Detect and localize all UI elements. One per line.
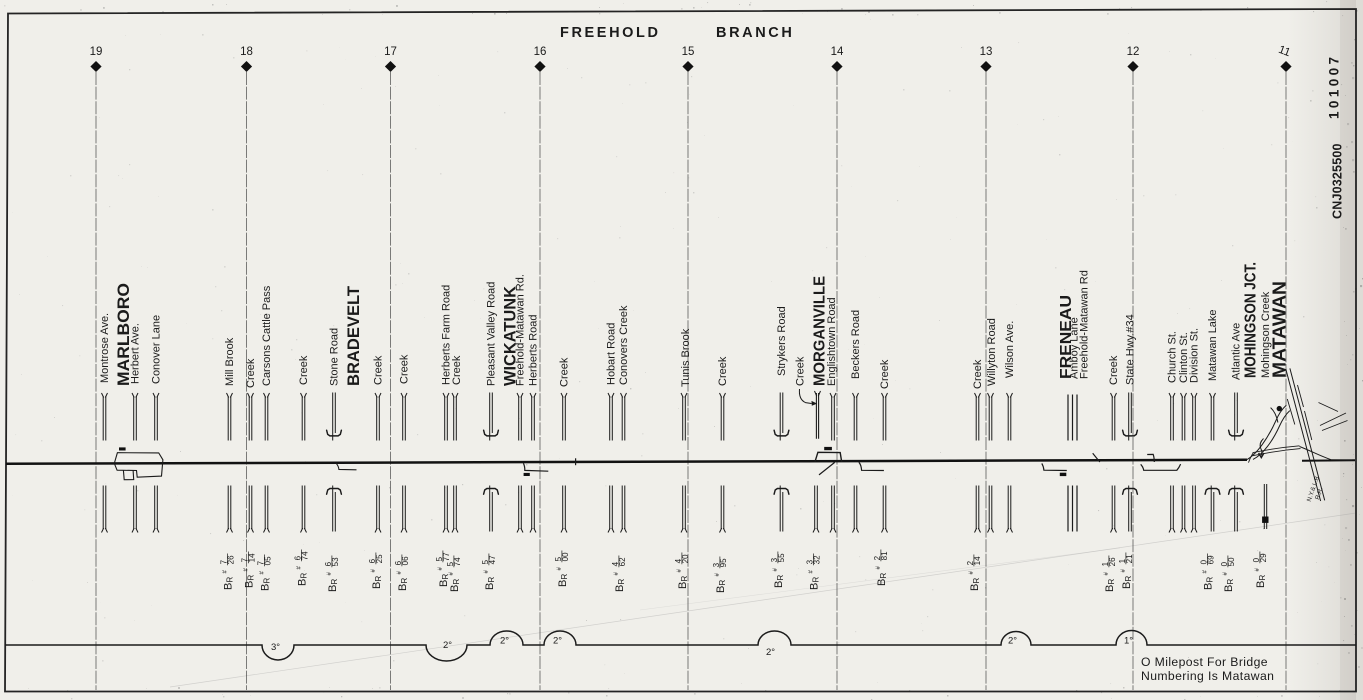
- svg-text:Hobart Road: Hobart Road: [606, 323, 618, 385]
- svg-text:81: 81: [880, 551, 889, 560]
- svg-text:Creek: Creek: [1108, 355, 1120, 385]
- svg-text:47: 47: [488, 555, 497, 564]
- svg-text:B: B: [677, 582, 689, 589]
- svg-text:2°: 2°: [766, 647, 775, 658]
- svg-text:Conover Lane: Conover Lane: [151, 315, 163, 384]
- svg-text:Willyton Road: Willyton Road: [986, 318, 998, 386]
- svg-text:Beckers Road: Beckers Road: [850, 310, 862, 379]
- svg-text:R: R: [560, 574, 569, 580]
- svg-text:B: B: [297, 579, 309, 586]
- svg-text:Mill Brook: Mill Brook: [224, 337, 236, 386]
- svg-text:B: B: [1255, 581, 1267, 588]
- svg-text:B: B: [244, 581, 256, 588]
- svg-text:Wilson Ave.: Wilson Ave.: [1004, 321, 1016, 378]
- svg-text:14: 14: [973, 556, 982, 565]
- svg-text:R: R: [330, 579, 339, 585]
- svg-text:Carsons Cattle Pass: Carsons Cattle Pass: [261, 285, 273, 386]
- svg-text:R: R: [879, 573, 888, 579]
- svg-text:B: B: [260, 584, 272, 591]
- svg-text:B: B: [614, 585, 626, 592]
- svg-text:69: 69: [1206, 555, 1215, 564]
- svg-text:R: R: [617, 579, 626, 585]
- svg-text:R: R: [776, 575, 785, 581]
- svg-text:05: 05: [263, 556, 272, 565]
- svg-text:B: B: [327, 585, 339, 592]
- svg-text:R: R: [487, 577, 496, 583]
- svg-text:2°: 2°: [1008, 636, 1017, 647]
- svg-text:Herberts Road: Herberts Road: [528, 314, 540, 386]
- svg-text:BRADEVELT: BRADEVELT: [344, 285, 363, 386]
- svg-text:MORGANVILLE: MORGANVILLE: [812, 276, 829, 386]
- svg-text:21: 21: [1125, 554, 1134, 563]
- svg-text:06: 06: [401, 556, 410, 565]
- svg-text:Creek: Creek: [245, 358, 257, 388]
- svg-text:B: B: [773, 581, 785, 588]
- svg-text:62: 62: [618, 557, 627, 566]
- svg-text:B: B: [1223, 585, 1235, 592]
- svg-text:MATAWAN: MATAWAN: [1270, 281, 1290, 378]
- svg-text:74: 74: [453, 557, 462, 566]
- svg-text:2°: 2°: [553, 636, 562, 647]
- svg-text:R: R: [1107, 579, 1116, 585]
- svg-text:14: 14: [247, 553, 256, 562]
- svg-text:R: R: [812, 577, 821, 583]
- svg-text:Creek: Creek: [972, 359, 984, 389]
- svg-text:101007: 101007: [1327, 54, 1342, 119]
- svg-text:B: B: [1121, 582, 1133, 589]
- svg-text:B: B: [397, 584, 409, 591]
- svg-text:Creek: Creek: [399, 354, 411, 384]
- svg-text:B: B: [557, 580, 569, 587]
- svg-text:CNJ0325500: CNJ0325500: [1331, 143, 1345, 219]
- svg-text:Conovers Creek: Conovers Creek: [618, 305, 630, 385]
- svg-text:BRANCH: BRANCH: [716, 25, 794, 41]
- svg-text:R: R: [1226, 579, 1235, 585]
- svg-text:R: R: [972, 578, 981, 584]
- svg-text:74: 74: [300, 551, 309, 560]
- svg-text:MOHINGSON JCT.: MOHINGSON JCT.: [1242, 262, 1259, 378]
- svg-text:B: B: [809, 583, 821, 590]
- svg-text:29: 29: [1259, 553, 1268, 562]
- svg-text:R: R: [680, 576, 689, 582]
- svg-text:77: 77: [442, 552, 451, 561]
- svg-text:B: B: [1104, 585, 1116, 592]
- svg-text:Creek: Creek: [795, 356, 807, 386]
- svg-text:50: 50: [1227, 557, 1236, 566]
- svg-text:B: B: [876, 579, 888, 586]
- svg-text:R: R: [374, 576, 383, 582]
- svg-text:Creek: Creek: [451, 355, 463, 385]
- svg-text:26: 26: [226, 555, 235, 564]
- svg-text:B: B: [223, 583, 235, 590]
- svg-text:Strykers Road: Strykers Road: [776, 306, 788, 376]
- svg-text:FREEHOLD: FREEHOLD: [560, 25, 661, 41]
- svg-text:2°: 2°: [500, 636, 509, 647]
- svg-text:Numbering Is Matawan: Numbering Is Matawan: [1141, 669, 1274, 683]
- svg-text:2°: 2°: [443, 640, 452, 651]
- svg-text:O Milepost For Bridge: O Milepost For Bridge: [1141, 655, 1268, 669]
- svg-text:FRENEAU: FRENEAU: [1058, 295, 1075, 379]
- svg-text:Creek: Creek: [717, 356, 729, 386]
- svg-text:State Hwy.#34: State Hwy.#34: [1125, 314, 1137, 385]
- svg-text:16: 16: [534, 46, 547, 58]
- svg-text:1°: 1°: [1124, 636, 1133, 647]
- svg-text:26: 26: [1108, 557, 1117, 566]
- svg-text:B: B: [1203, 583, 1215, 590]
- svg-text:32: 32: [812, 555, 821, 564]
- svg-text:13: 13: [980, 46, 993, 58]
- svg-text:19: 19: [90, 46, 103, 58]
- svg-text:20: 20: [681, 554, 690, 563]
- svg-text:Pleasant Valley Road: Pleasant Valley Road: [486, 282, 498, 386]
- svg-text:Stone Road: Stone Road: [329, 328, 341, 386]
- svg-text:53: 53: [331, 557, 340, 566]
- svg-text:B: B: [484, 583, 496, 590]
- svg-text:R: R: [1258, 575, 1267, 581]
- svg-text:95: 95: [719, 558, 728, 567]
- svg-text:15: 15: [682, 46, 695, 58]
- svg-text:R: R: [400, 578, 409, 584]
- svg-text:Creek: Creek: [879, 359, 891, 389]
- svg-text:Church St.: Church St.: [1167, 331, 1179, 383]
- svg-text:17: 17: [384, 46, 397, 58]
- svg-text:B: B: [715, 586, 727, 593]
- svg-text:Creek: Creek: [298, 355, 310, 385]
- svg-text:R: R: [263, 578, 272, 584]
- svg-text:Tunis Brook: Tunis Brook: [680, 328, 692, 387]
- svg-text:Matawan Lake: Matawan Lake: [1207, 309, 1219, 381]
- svg-text:R: R: [452, 579, 461, 585]
- svg-text:14: 14: [831, 46, 844, 58]
- svg-text:Freehold-Matawan Rd: Freehold-Matawan Rd: [1079, 270, 1091, 379]
- svg-text:R: R: [1124, 576, 1133, 582]
- svg-text:25: 25: [375, 554, 384, 563]
- svg-text:MARLBORO: MARLBORO: [114, 283, 133, 386]
- svg-text:R: R: [226, 577, 235, 583]
- svg-text:Creek: Creek: [559, 357, 571, 387]
- svg-text:R: R: [247, 575, 256, 581]
- svg-text:12: 12: [1127, 46, 1140, 58]
- svg-text:3°: 3°: [271, 642, 280, 653]
- svg-text:B: B: [449, 585, 461, 592]
- svg-text:WICKATUNK: WICKATUNK: [501, 285, 520, 386]
- svg-text:R: R: [1206, 577, 1215, 583]
- svg-text:R: R: [718, 580, 727, 586]
- svg-text:R: R: [300, 573, 309, 579]
- svg-text:B: B: [371, 582, 383, 589]
- svg-text:00: 00: [561, 552, 570, 561]
- svg-text:55: 55: [777, 553, 786, 562]
- svg-text:Creek: Creek: [373, 355, 385, 385]
- svg-text:Montrose Ave.: Montrose Ave.: [99, 313, 111, 383]
- svg-text:Division St.: Division St.: [1189, 328, 1201, 383]
- svg-text:B: B: [969, 584, 981, 591]
- svg-text:Atlantic Ave: Atlantic Ave: [1231, 323, 1243, 380]
- svg-text:18: 18: [240, 46, 253, 58]
